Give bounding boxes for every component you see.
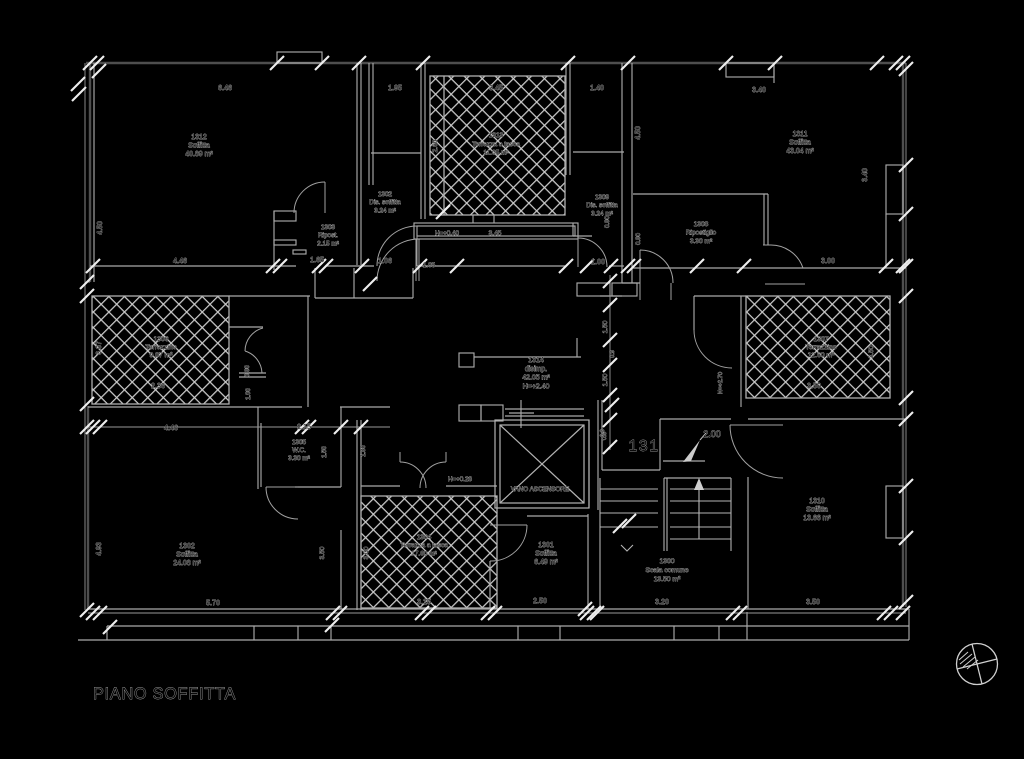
svg-text:1302: 1302 [179,543,195,550]
svg-text:1314: 1314 [528,357,544,364]
svg-text:13.50 m²: 13.50 m² [654,576,682,583]
svg-text:3.30 m²: 3.30 m² [690,238,713,245]
svg-text:W.C.: W.C. [292,447,306,454]
svg-text:0.90: 0.90 [245,365,251,377]
svg-text:1309: 1309 [595,194,610,201]
svg-text:1.65: 1.65 [310,255,324,264]
svg-text:2.15: 2.15 [297,422,311,431]
svg-text:4.93: 4.93 [96,542,103,556]
svg-text:12.60 m²: 12.60 m² [808,352,836,359]
svg-text:Terrazza a tasca: Terrazza a tasca [472,141,520,148]
svg-text:Terrazzino: Terrazzino [145,344,177,351]
svg-text:1304: 1304 [417,534,432,541]
svg-text:1.50: 1.50 [322,446,328,458]
svg-text:Soffitta: Soffitta [789,140,811,147]
svg-text:H=+0.40: H=+0.40 [435,230,460,237]
svg-text:2.36: 2.36 [151,381,165,390]
svg-text:3.00: 3.00 [363,546,370,559]
svg-text:13.66 m²: 13.66 m² [803,515,831,522]
svg-text:4.46: 4.46 [173,256,187,265]
svg-text:3.50: 3.50 [868,345,875,358]
svg-text:H=+2.40: H=+2.40 [523,383,550,390]
svg-text:Dis. soffitta: Dis. soffitta [369,199,401,206]
svg-text:0.8: 0.8 [600,429,606,437]
svg-text:1.50: 1.50 [602,320,609,333]
svg-text:1306: 1306 [153,336,168,343]
svg-text:0.90: 0.90 [635,232,642,245]
svg-text:3.30 m²: 3.30 m² [288,455,310,462]
svg-text:Soffitta: Soffitta [188,143,210,150]
svg-text:5.70: 5.70 [206,598,220,607]
svg-text:9.07 m²: 9.07 m² [149,352,173,359]
svg-text:3.50: 3.50 [806,597,820,606]
svg-text:1301: 1301 [538,542,554,549]
svg-text:40.89 m²: 40.89 m² [185,151,213,158]
svg-text:0.90: 0.90 [604,215,611,228]
svg-text:3.40: 3.40 [752,85,766,94]
svg-text:1312: 1312 [191,134,207,141]
svg-text:131: 131 [628,438,659,455]
svg-text:Soffitta: Soffitta [176,552,198,559]
svg-text:Scala comune: Scala comune [645,567,688,574]
svg-text:1.40: 1.40 [590,83,604,92]
svg-text:disimp.: disimp. [525,366,547,373]
svg-text:1.80: 1.80 [361,445,367,457]
svg-text:6.49 m²: 6.49 m² [534,559,558,566]
svg-text:2.15 m²: 2.15 m² [317,240,339,247]
svg-text:PIANO SOFFITTA: PIANO SOFFITTA [93,685,236,703]
svg-text:1.05: 1.05 [423,262,436,269]
svg-text:3.45: 3.45 [489,230,502,237]
svg-text:1307: 1307 [813,336,828,343]
svg-text:1.00: 1.00 [246,388,252,400]
svg-text:2.50: 2.50 [533,596,547,605]
svg-text:Ripost.: Ripost. [318,232,338,239]
svg-text:11.05 m²: 11.05 m² [483,150,509,157]
svg-text:3.50: 3.50 [807,381,821,390]
svg-text:VANO ASCENSORE: VANO ASCENSORE [511,486,569,493]
svg-text:17.60 m²: 17.60 m² [411,550,437,557]
svg-text:2.60: 2.60 [432,139,439,152]
svg-text:H=+2.70: H=+2.70 [718,372,724,394]
svg-text:1305: 1305 [292,439,307,446]
svg-text:1308: 1308 [694,221,709,228]
svg-text:Dis. soffitta: Dis. soffitta [586,202,618,209]
svg-text:4.50: 4.50 [635,126,642,140]
svg-text:1302: 1302 [378,191,393,198]
svg-text:24.08 m²: 24.08 m² [173,560,201,567]
svg-text:4.46: 4.46 [164,423,178,432]
svg-text:3.50: 3.50 [319,546,326,559]
svg-text:43.04 m²: 43.04 m² [786,148,814,155]
svg-text:H=+0.28: H=+0.28 [448,476,473,483]
svg-text:1.06: 1.06 [378,256,392,265]
svg-text:Soffitta: Soffitta [535,551,557,558]
svg-text:1.00: 1.00 [591,257,605,266]
svg-text:2.00: 2.00 [703,429,721,439]
svg-text:3.15: 3.15 [417,597,431,606]
svg-text:0.9: 0.9 [610,350,616,358]
svg-text:1303: 1303 [321,224,336,231]
svg-text:42.05 m²: 42.05 m² [522,375,550,382]
svg-text:4.50: 4.50 [97,221,104,235]
svg-text:3.40: 3.40 [862,168,869,182]
svg-text:1.95: 1.95 [388,83,402,92]
svg-text:Soffitta: Soffitta [806,507,828,514]
svg-text:6.46: 6.46 [218,83,232,92]
svg-text:3.45: 3.45 [489,83,503,92]
svg-text:Terrazza a tasca: Terrazza a tasca [400,542,448,549]
svg-text:1311: 1311 [792,131,807,138]
svg-text:1.50: 1.50 [602,373,609,386]
svg-text:1300: 1300 [659,558,674,565]
svg-text:3.07: 3.07 [96,341,103,355]
svg-text:3.00: 3.00 [821,256,835,265]
svg-text:Ripostiglio: Ripostiglio [686,229,717,236]
svg-text:3.20: 3.20 [655,597,669,606]
svg-text:Terrazzino: Terrazzino [805,344,837,351]
svg-text:1313: 1313 [489,132,504,139]
svg-text:3.24 m²: 3.24 m² [374,207,396,214]
svg-text:1310: 1310 [809,498,825,505]
